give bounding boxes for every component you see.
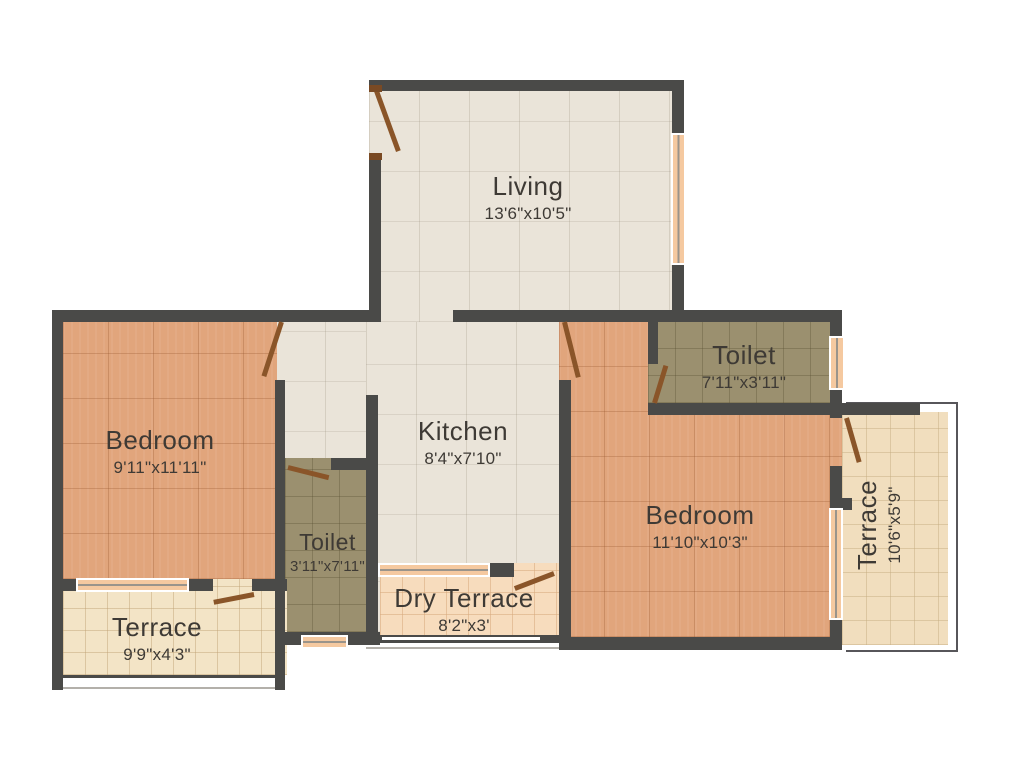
- wall-living-right-lower: [672, 263, 684, 322]
- toilet-right-label: Toilet 7'11"x3'11": [654, 341, 834, 392]
- toilet-center-name: Toilet: [270, 530, 385, 556]
- entrance-door-stop: [369, 153, 382, 160]
- dry-terrace-dims: 8'2"x3': [354, 616, 574, 635]
- bedroom-left-label: Bedroom 9'11"x11'11": [40, 426, 280, 477]
- dry-terrace-name: Dry Terrace: [354, 584, 574, 613]
- wall-bedroom-left-bottom-b: [189, 579, 213, 591]
- terrace-left-railing: [63, 675, 277, 678]
- kitchen-name: Kitchen: [353, 417, 573, 446]
- toilet-right-dims: 7'11"x3'11": [654, 373, 834, 392]
- terrace-left-railing-outer: [63, 687, 277, 689]
- entrance-door-hinge: [369, 85, 382, 92]
- terrace-left-name: Terrace: [47, 613, 267, 642]
- toilet-center-vent-window: [301, 635, 348, 649]
- wall-bedroom-right-east-b: [830, 466, 842, 510]
- wall-mid-left: [52, 310, 380, 322]
- living-room-dims: 13'6"x10'5": [398, 204, 658, 223]
- kitchen-label: Kitchen 8'4"x7'10": [353, 417, 573, 468]
- wall-notch: [842, 498, 852, 510]
- toilet-center-label: Toilet 3'11"x7'11": [270, 530, 385, 576]
- dry-terrace-railing-gap: [382, 637, 540, 640]
- living-room-name: Living: [398, 172, 658, 201]
- terrace-right-label: Terrace 10'6"x5'9": [853, 425, 923, 625]
- bedroom-left-dims: 9'11"x11'11": [40, 458, 280, 477]
- wall-living-right-upper: [672, 80, 684, 135]
- wall-dry-terrace-window-jamb: [488, 563, 514, 577]
- living-window: [671, 133, 686, 265]
- bedroom-left-name: Bedroom: [40, 426, 280, 455]
- bedroom-right-name: Bedroom: [580, 501, 820, 530]
- dry-terrace-railing-outer: [366, 647, 571, 649]
- floor-plan: Living 13'6"x10'5" Kitchen 8'4"x7'10" Be…: [0, 0, 1024, 768]
- wall-living-top: [369, 80, 684, 91]
- terrace-right-name: Terrace: [853, 425, 882, 625]
- terrace-right-dims: 10'6"x5'9": [885, 425, 904, 625]
- terrace-left-dims: 9'9"x4'3": [47, 645, 267, 664]
- dry-terrace-label: Dry Terrace 8'2"x3': [354, 584, 574, 635]
- bedroom-right-dims: 11'10"x10'3": [580, 533, 820, 552]
- kitchen-dims: 8'4"x7'10": [353, 449, 573, 468]
- living-room-label: Living 13'6"x10'5": [398, 172, 658, 223]
- bedroom-right-terrace-window: [829, 508, 843, 620]
- wall-bedroom-right-east-c: [830, 618, 842, 650]
- bedroom-left-window: [76, 578, 189, 592]
- toilet-right-name: Toilet: [654, 341, 834, 370]
- kitchen-window: [378, 563, 490, 577]
- bedroom-right-label: Bedroom 11'10"x10'3": [580, 501, 820, 552]
- wall-toilet-right-bottom: [648, 403, 920, 415]
- wall-bedroom-right-bottom: [559, 637, 842, 650]
- wall-living-left: [369, 158, 381, 322]
- toilet-center-dims: 3'11"x7'11": [270, 559, 385, 576]
- terrace-left-label: Terrace 9'9"x4'3": [47, 613, 267, 664]
